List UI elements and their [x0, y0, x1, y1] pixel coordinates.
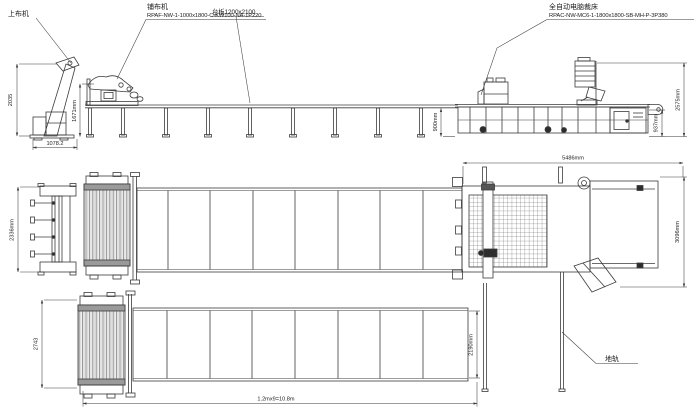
- dim-text-table-plan-width: 2190mm: [469, 334, 475, 356]
- cad-layout-drawing: 2035 1078.2 1671mm 900mm 937mm 2575mm: [0, 0, 700, 412]
- dim-loader-base-width: 1078.2: [33, 139, 77, 150]
- dim-text-cutter-rear: 937mm: [654, 113, 660, 132]
- loader-side-view: [30, 57, 79, 140]
- dim-spreader-plan-width: 2743: [34, 300, 78, 388]
- label-ground-rail: 地轨: [562, 332, 638, 364]
- dim-text-table-height: 900mm: [433, 112, 439, 131]
- label-loader: 上布机: [8, 9, 71, 63]
- dim-text-spreader-plan-width: 2743: [34, 338, 40, 350]
- ground-rail-lines: [482, 272, 565, 392]
- dim-cutter-length: 5486mm: [463, 156, 683, 185]
- dim-text-cutter-length: 5486mm: [562, 156, 584, 162]
- dim-cutter-plan-width: 3096mm: [620, 177, 687, 287]
- dim-text-cutter-plan-width: 3096mm: [675, 221, 681, 243]
- dim-text-spreader-height: 1671mm: [72, 100, 78, 122]
- label-text-cutter-name: 全自动电脑裁床: [549, 2, 598, 11]
- dim-spreader-height: 1671mm: [72, 84, 94, 137]
- table-plan-view-mid: [137, 188, 462, 272]
- dim-cutter-overall-height: 2575mm: [597, 63, 687, 137]
- label-text-cutter-model: RPAC-NW-MC6-1-1800x1800-SB-MH-P-3P380: [549, 13, 668, 19]
- dim-total-length: 1.2mx9=10.8m: [83, 382, 477, 407]
- table-side-view: [85, 105, 458, 137]
- label-text-ground-rail: 地轨: [605, 354, 619, 363]
- cutter-plan-view: [453, 167, 659, 292]
- dim-text-loader-plan: 2336mm: [10, 219, 16, 241]
- spreader-plan-view-bottom: [78, 291, 135, 398]
- dim-text-loader-base: 1078.2: [46, 141, 63, 147]
- dim-text-loader-height: 2035: [8, 94, 14, 106]
- dim-table-height: 900mm: [433, 109, 455, 137]
- table-plan-view-bottom: [133, 308, 468, 381]
- cutter-side-view: [455, 58, 663, 134]
- loader-plan-view: [31, 184, 77, 276]
- dim-cutter-rear-height: 937mm: [649, 110, 665, 137]
- label-text-platen: 台板1200x2100: [212, 7, 256, 16]
- spreader-plan-view-mid: [84, 173, 140, 285]
- spreader-side-view: [86, 76, 143, 106]
- label-text-spreader-name: 铺布机: [147, 2, 168, 11]
- dim-text-cutter-overall: 2575mm: [676, 89, 682, 111]
- dim-text-total-length: 1.2mx9=10.8m: [257, 397, 294, 403]
- dim-table-plan-width: 2190mm: [469, 311, 481, 378]
- label-platen: 台板1200x2100: [211, 7, 264, 103]
- dim-loader-height: 2035: [8, 64, 57, 136]
- machine-line-drawing: 2035 1078.2 1671mm 900mm 937mm 2575mm: [0, 0, 700, 412]
- dim-loader-plan-width: 2336mm: [10, 187, 41, 272]
- label-text-loader: 上布机: [8, 9, 29, 18]
